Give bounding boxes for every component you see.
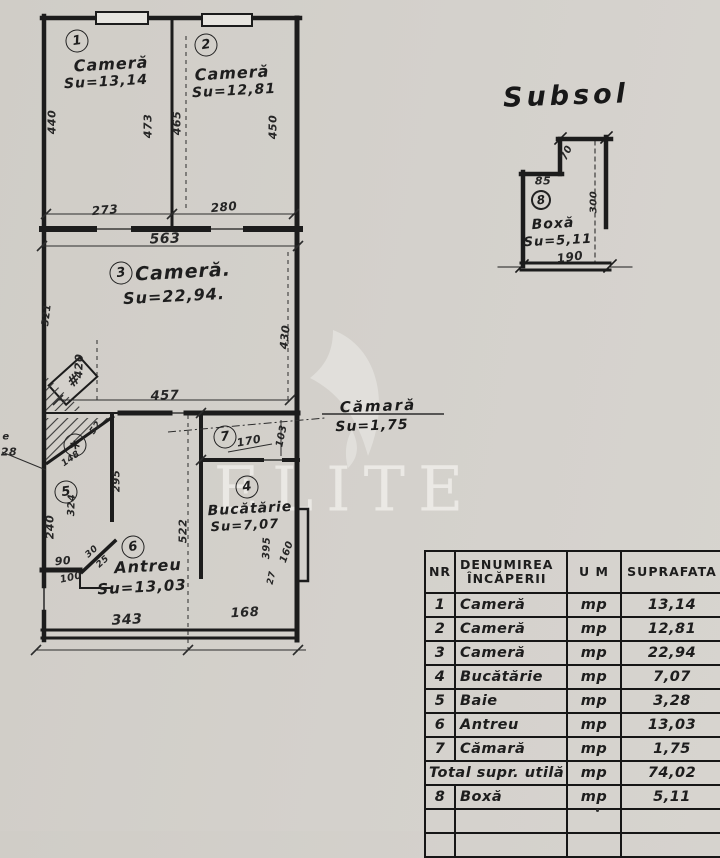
- table-cell-um: mp: [568, 618, 622, 640]
- table-header-cell: U M: [568, 552, 622, 592]
- main-plan-walls: [42, 16, 308, 640]
- table-cell-um: mp: [568, 738, 622, 760]
- table-row: 4Bucătăriemp7,07: [426, 666, 720, 690]
- table-cell-value: 22,94: [622, 642, 720, 664]
- table-cell-um: mp: [568, 594, 622, 616]
- scanned-floor-plan-page: { "basement": { "title": "Subsol" }, "wa…: [0, 0, 720, 831]
- table-cell-value: 12,81: [622, 618, 720, 640]
- table-header-cell: DENUMIREA ÎNCĂPERII: [456, 552, 568, 592]
- table-cell-nr: 2: [426, 618, 456, 640]
- table-cell-value: 5,11: [622, 786, 720, 808]
- table-cell-name: Cămară: [456, 738, 568, 760]
- table-row: 8Boxămp5,11: [426, 786, 720, 810]
- table-cell-name: Bucătărie: [456, 666, 568, 688]
- table-row: 3Camerămp22,94: [426, 642, 720, 666]
- table-row: 2Camerămp12,81: [426, 618, 720, 642]
- table-cell-um: [568, 834, 622, 856]
- table-cell-name: Cameră: [456, 618, 568, 640]
- table-cell-um: mp: [568, 666, 622, 688]
- table-cell-um: [568, 810, 622, 832]
- table-cell-nr: 3: [426, 642, 456, 664]
- basement-title: Subsol: [503, 78, 630, 113]
- table-cell-um: mp: [568, 762, 622, 784]
- table-cell-nr: 4: [426, 666, 456, 688]
- table-cell-nr: 6: [426, 714, 456, 736]
- camara-callout-area: Su=1,75: [335, 417, 409, 436]
- table-cell-value: 13,14: [622, 594, 720, 616]
- table-cell-name: [456, 810, 568, 832]
- table-cell-nr: 8: [426, 786, 456, 808]
- table-cell-name: [456, 834, 568, 856]
- table-cell-name: Baie: [456, 690, 568, 712]
- table-cell-um: mp: [568, 642, 622, 664]
- table-cell-name: Cameră: [456, 642, 568, 664]
- table-cell-nr: 5: [426, 690, 456, 712]
- table-row: 1Camerămp13,14: [426, 594, 720, 618]
- table-cell-um: mp: [568, 786, 622, 808]
- table-cell-value: 3,28: [622, 690, 720, 712]
- camara-callout-name: Cămară: [340, 396, 417, 417]
- table-cell-value: [622, 810, 720, 832]
- table-header-row: NRDENUMIREA ÎNCĂPERIIU MSUPRAFATA: [426, 552, 720, 594]
- table-cell-nr: 7: [426, 738, 456, 760]
- table-cell-name: Boxă: [456, 786, 568, 808]
- table-row: 6Antreump13,03: [426, 714, 720, 738]
- table-cell-value: 74,02: [622, 762, 720, 784]
- table-cell-value: [622, 834, 720, 856]
- basement-walls: [498, 132, 632, 272]
- table-cell-value: 13,03: [622, 714, 720, 736]
- table-cell-um: mp: [568, 714, 622, 736]
- table-row: 5Baiemp3,28: [426, 690, 720, 714]
- table-row: [426, 810, 720, 834]
- table-row: 7Cămarămp1,75: [426, 738, 720, 762]
- table-header-cell: SUPRAFATA: [622, 552, 720, 592]
- table-cell-um: mp: [568, 690, 622, 712]
- table-cell-nr: 1: [426, 594, 456, 616]
- dimension-lines: [2, 36, 444, 655]
- table-cell-value: 1,75: [622, 738, 720, 760]
- table-cell-nr: [426, 834, 456, 856]
- table-cell-name: Total supr. utilă: [426, 762, 568, 784]
- table-row: [426, 834, 720, 858]
- area-table: NRDENUMIREA ÎNCĂPERIIU MSUPRAFATA1Cameră…: [424, 550, 720, 858]
- table-row: Total supr. utilămp74,02: [426, 762, 720, 786]
- table-cell-name: Antreu: [456, 714, 568, 736]
- table-header-cell: NR: [426, 552, 456, 592]
- table-cell-name: Cameră: [456, 594, 568, 616]
- table-cell-nr: [426, 810, 456, 832]
- table-cell-value: 7,07: [622, 666, 720, 688]
- stray-ink-dot: [596, 809, 599, 812]
